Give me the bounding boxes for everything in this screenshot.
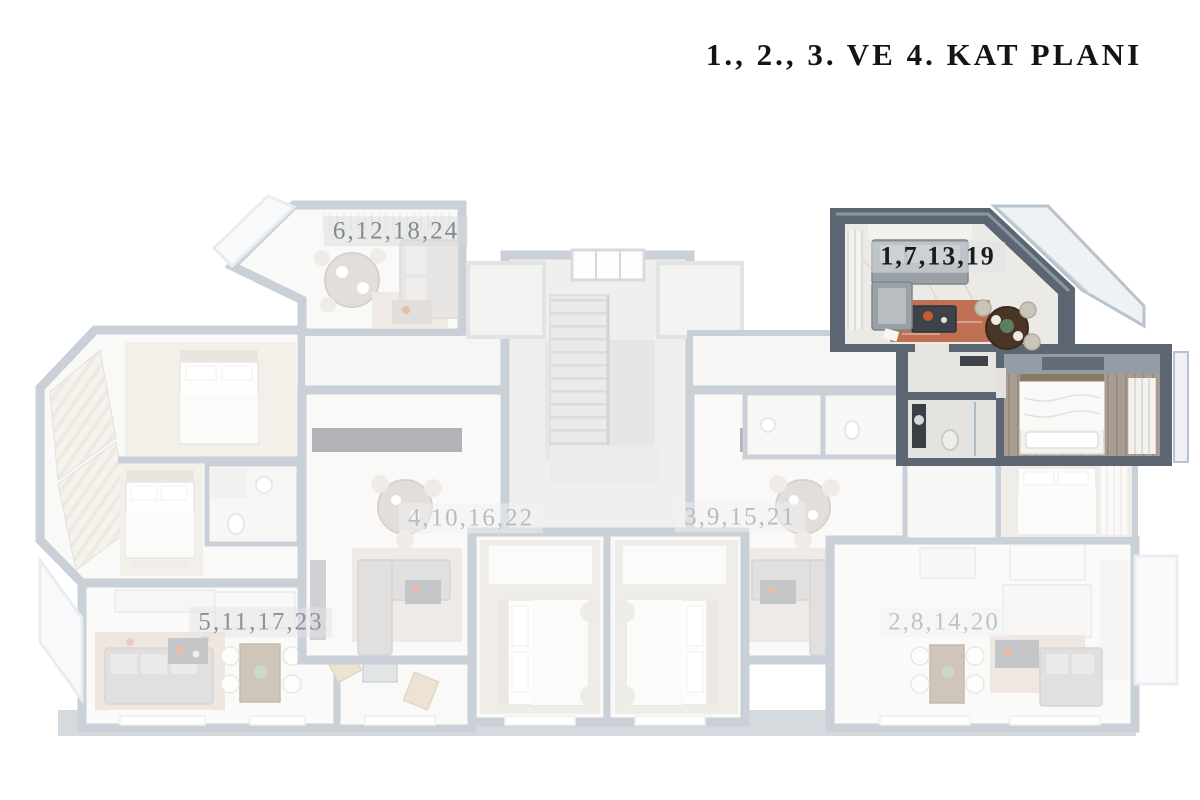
floor-plan-render	[0, 0, 1200, 800]
stairs	[550, 295, 608, 445]
unit-label-5-11-17-23: 5,11,17,23	[189, 607, 332, 637]
unit-label-3-9-15-21: 3,9,15,21	[675, 502, 805, 532]
accent-panel	[1042, 357, 1104, 370]
bathroom	[207, 464, 299, 544]
balcony-glass	[1174, 352, 1188, 462]
counter	[1100, 560, 1128, 680]
coffee-table	[392, 300, 432, 324]
bed	[126, 470, 194, 570]
door-gap	[915, 344, 949, 354]
hall	[905, 462, 998, 540]
page-title: 1., 2., 3. VE 4. KAT PLANI	[706, 37, 1142, 73]
unit-label-1-7-13-19: 1,7,13,19	[871, 242, 1005, 273]
elevator	[468, 263, 544, 337]
coffee-table	[760, 580, 796, 604]
wardrobe	[622, 545, 727, 585]
curtains	[868, 224, 972, 239]
bed	[615, 600, 717, 706]
unit-label-6-12-18-24: 6,12,18,24	[324, 216, 468, 246]
toilet	[942, 430, 958, 450]
bathrooms	[745, 393, 905, 457]
floor-plan-page: 1., 2., 3. VE 4. KAT PLANI 6,12,18,24 1,…	[0, 0, 1200, 800]
curtains	[845, 230, 863, 330]
shaft-window	[572, 250, 644, 280]
bathroom	[908, 400, 996, 458]
kitchen-counter	[312, 428, 462, 452]
curtains	[1128, 378, 1156, 454]
left-wing	[40, 330, 302, 583]
kitchen-hood	[1010, 545, 1085, 580]
kitchen-island	[920, 548, 975, 578]
bed	[498, 600, 600, 706]
coffee-table	[912, 306, 956, 332]
coffee-table	[995, 640, 1039, 668]
bed	[1018, 468, 1096, 534]
corridor	[302, 333, 505, 390]
balcony	[1135, 556, 1177, 684]
bed	[180, 350, 258, 444]
pillows	[1026, 432, 1098, 448]
wardrobe	[1100, 465, 1128, 535]
door-gap	[996, 368, 1006, 398]
vanity	[912, 404, 926, 448]
bedroom	[996, 354, 1160, 456]
wardrobe	[488, 545, 593, 585]
unit-label-4-10-16-22: 4,10,16,22	[399, 503, 543, 533]
center-bedrooms	[472, 532, 745, 722]
kitchen-cabinets	[312, 408, 462, 426]
unit-label-2-8-14-20: 2,8,14,20	[879, 607, 1009, 637]
headboard	[1020, 374, 1104, 382]
coffee-table	[405, 580, 441, 604]
kitchen-island	[1003, 585, 1091, 637]
console	[960, 356, 988, 366]
coffee-table	[168, 638, 208, 664]
elevator	[658, 263, 742, 337]
